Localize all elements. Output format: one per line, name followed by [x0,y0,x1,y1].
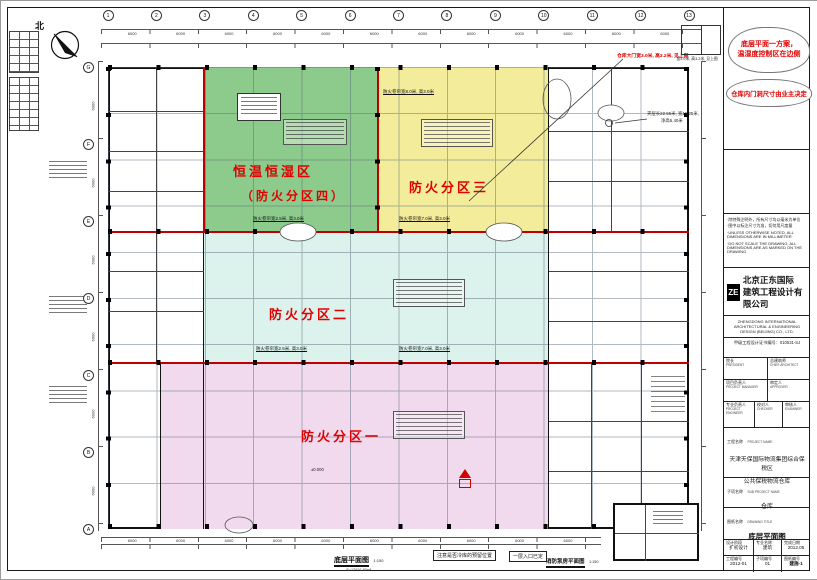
pump-title: 消防泵房平面图 [546,559,585,568]
gate-sketch [681,25,721,55]
partition [108,191,204,192]
company-box: ZE 北京正东国际 建筑工程设计有限公司 ZHENGDONG INTERNATI… [724,267,810,357]
meta-value: 01 [756,561,779,566]
partition [549,321,689,322]
meta-value: 扩初设计 [726,545,751,551]
meta-value: 建施-1 [784,561,808,567]
subproject-label-en: SUB PROJECT NAME [747,490,779,494]
dim-line-bottom-1 [101,537,601,542]
plan-area: S=12916.80m² [334,568,383,572]
meta-cell: 工程编号 2012-01 [724,556,753,572]
zone-four-label-line2: （防火分区四） [241,187,346,204]
meta-cell: 完成日期 2012.05 [781,540,810,556]
info-block [421,119,493,147]
project-name-line1: 天津天保国际物流集团综合保税区 [727,454,807,472]
personnel-grid: 院长 PRESIDENT 总建筑师 CHIEF ARCHITECT 项目负责人 … [724,357,810,427]
gate-leaf [682,26,702,54]
meta-value: 2012-01 [726,561,751,566]
entrance-note: 一层入口已定 [509,551,547,562]
partition [108,151,204,152]
company-name-cn1: 北京正东国际 [743,274,807,286]
shutter-label: 防火卷帘宽7.0米, 高3.0米 [399,346,450,352]
subproject-box: 子项名称 SUB PROJECT NAME 仓库 [724,477,810,507]
note-line: ·图中以标注尺寸为准，切勿用尺度量 [727,224,807,228]
columns [108,65,689,70]
personnel-cell: 总建筑师 CHIEF ARCHITECT [767,358,810,380]
partition [591,364,592,529]
project-label-en: PROJECT NAME [747,440,772,444]
zone-one [161,364,549,529]
personnel-cell: 院长 PRESIDENT [724,358,767,380]
personnel-label-en: PROJECT MANAGER [726,385,765,389]
company-logo: ZE [727,284,740,301]
dim-line-left [98,61,103,531]
personnel-cell: 校对人 CHECKER [754,402,782,428]
personnel-cell: 项目负责人 PROJECT MANAGER [724,380,767,402]
revision-cloud-note-1: 底层平面一方案， 温湿度控制区在边侧 [728,27,810,73]
personnel-label-en: PROJECT ENGINEER [726,407,752,415]
columns [684,67,689,529]
personnel-cell: 专业负责人 PROJECT ENGINEER [724,402,754,428]
schedule-table [9,77,39,131]
gate-sketch-caption: 宽3.0米, 高3.2米, 见上图 [669,57,725,62]
personnel-label-en: APPROVER [770,385,808,389]
info-block [283,119,347,145]
meta-value: 2012.05 [784,545,808,550]
info-block [393,411,465,439]
mezzanine-note: 夹层长22.55米, 宽16.25米, 净高5.40米 [647,111,699,124]
pump-title-block: 消防泵房平面图 1:150 [546,550,598,568]
project-label: 工程名称 [727,439,743,444]
shutter-label: 防火卷帘宽2.5米, 高3.0米 [256,346,307,352]
personnel-label-en: CHIEF ARCHITECT [770,363,808,367]
partition [615,533,699,534]
zone-one-label: 防火分区一 [301,426,381,445]
margin-note [49,296,87,314]
drawing-sheet: 北 恒温恒湿区 （防火分区四） 防火分区三 防火分区二 防火分区 [0,0,817,580]
columns [108,360,689,365]
subproject-label: 子项名称 [727,489,743,494]
meta-cell: 图纸编号 建施-1 [781,556,810,572]
plan-title-block: 底层平面图 1:150 S=12916.80m² [334,549,383,572]
partition [549,471,689,472]
partition [611,67,612,233]
meta-value: 建筑 [756,545,779,551]
shutter-label: 防火卷帘宽7.0米, 高3.0米 [399,216,450,222]
columns [108,524,689,529]
partition [549,181,689,182]
entrance-arrow-icon [459,469,471,478]
plan-scale: 1:150 [373,558,383,563]
small-room-box [237,93,281,121]
personnel-label-en: PRESIDENT [726,363,765,367]
north-label: 北 [35,19,44,32]
notes-box: ·除特殊注明外，所有尺寸均以毫米为单位 ·图中以标注尺寸为准，切勿用尺度量 ·U… [724,213,810,267]
partition [549,271,689,272]
columns [108,229,689,234]
info-block [393,279,465,307]
dim-line-right [701,61,706,531]
entrance-box [459,479,471,488]
note-line: ·UNLESS OTHERWISE NOTED, ALL DIMENSIONS … [727,231,807,240]
cloud-note1-line1: 底层平面一方案， [729,40,809,51]
drawing-title-label: 图纸名称 [727,519,743,524]
cloud-note1-line2: 温湿度控制区在边侧 [729,50,809,61]
coldstore-note: 注意是否冷库的预留位置 [433,550,496,561]
company-cert: 甲级工程设计证书编号：010531-SJ [724,337,810,348]
personnel-label-en: EXAMINER [785,407,808,411]
zone-four-constant-temp [204,67,378,233]
meta-cell: 设计阶段 扩初设计 [724,540,753,556]
wall [203,233,204,529]
partition [108,311,204,312]
dim-line-top-1 [101,29,701,34]
wall [160,364,161,529]
personnel-cell: 审定人 APPROVER [767,380,810,402]
partition [549,131,689,132]
margin-note [49,386,87,404]
elevation-label: ±0.000 [311,467,324,472]
shutter-label: 防火卷帘宽2.5米, 高3.0米 [253,216,304,222]
pump-room-text [653,511,683,525]
zone-two-label: 防火分区二 [269,304,349,323]
zone-three-label: 防火分区三 [409,177,489,196]
pump-room-plan [613,503,699,561]
pump-scale: 1:150 [589,560,599,564]
fire-wall [203,67,205,233]
meta-cell: 子项编号 01 [753,556,781,572]
margin-note [49,161,87,179]
mezzanine-note-line1: 夹层长22.55米, 宽16.25米, [647,111,699,118]
plan-title: 底层平面图 [334,557,369,567]
stair-hatch [651,376,685,416]
drawing-title-label-en: DRAWING TITLE [747,520,772,524]
partition [549,421,689,422]
note-line: ·DO NOT SCALE THE DRAWING, ALL DIMENSION… [727,242,807,255]
company-name-cn2: 建筑工程设计有限公司 [743,286,807,310]
shutter-label: 防火卷帘宽8.0米, 高3.0米 [383,89,434,95]
columns [106,67,111,529]
entrance-marker [456,469,474,491]
keyplan-box [724,149,810,213]
project-name-box: 工程名称 PROJECT NAME 天津天保国际物流集团综合保税区 公共保税物流… [724,427,810,477]
drawing-title-box: 图纸名称 DRAWING TITLE 底层平面图 [724,507,810,539]
company-name-en3: DESIGN (BEIJING) CO., LTD. [726,329,808,334]
columns [375,67,380,233]
revision-cloud-note-2: 仓库内门洞尺寸由业主决定 [726,79,812,107]
partition [108,271,204,272]
zone-four-label-line1: 恒温恒湿区 [233,161,313,180]
mezzanine-note-line2: 净高5.40米 [661,118,699,125]
dim-line-top-2 [101,43,701,48]
wall [548,67,549,529]
zone-two [204,233,549,364]
personnel-cell: 审核人 EXAMINER [782,402,810,428]
meta-cell: 专业名称 建筑 [753,540,781,556]
meta-grid: 设计阶段 扩初设计 专业名称 建筑 完成日期 2012.05 工程编号 2012… [724,539,810,571]
personnel-label-en: CHECKER [757,407,780,411]
schedule-table [9,31,39,73]
partition [108,111,204,112]
note-line: ·除特殊注明外，所有尺寸均以毫米为单位 [727,218,807,222]
gate-leaf [702,26,721,54]
